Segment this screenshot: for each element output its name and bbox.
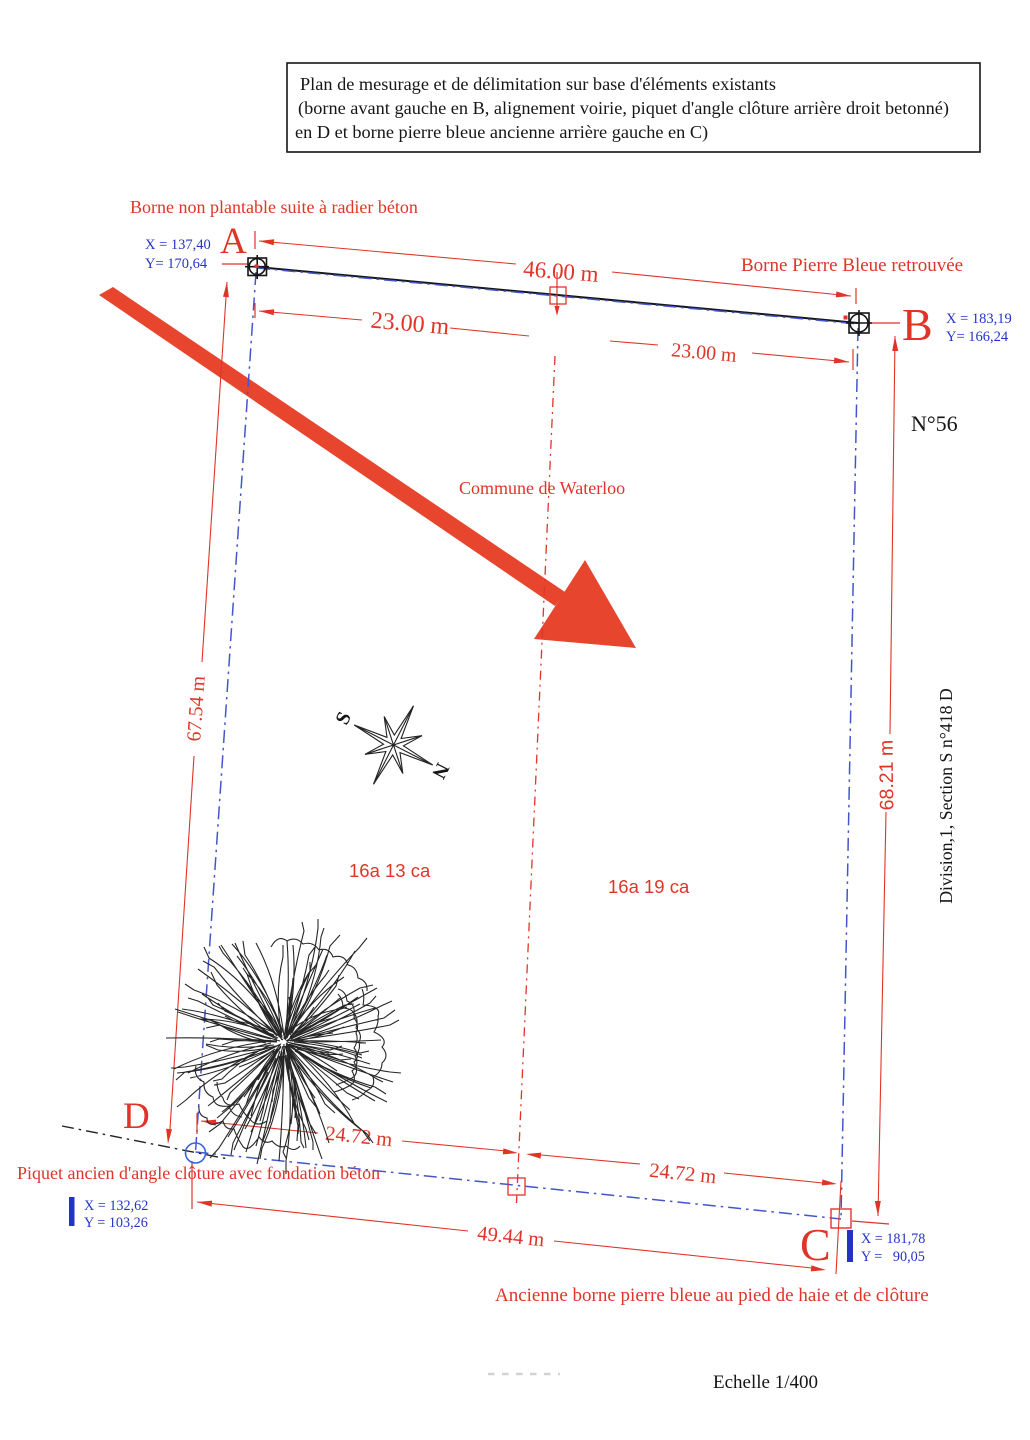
svg-text:67.54 m: 67.54 m bbox=[183, 675, 210, 742]
svg-text:68.21 m: 68.21 m bbox=[875, 740, 898, 811]
svg-text:Division,1, Section S n°418 D: Division,1, Section S n°418 D bbox=[936, 688, 956, 904]
svg-text:(borne avant gauche en B, alig: (borne avant gauche en B, alignement voi… bbox=[298, 98, 949, 119]
svg-text:Echelle 1/400: Echelle 1/400 bbox=[713, 1372, 818, 1393]
svg-text:B: B bbox=[902, 299, 933, 350]
svg-text:Borne non plantable suite à ra: Borne non plantable suite à radier béton bbox=[130, 197, 418, 217]
svg-text:C: C bbox=[800, 1219, 831, 1270]
svg-text:Y= 170,64: Y= 170,64 bbox=[145, 256, 208, 272]
svg-text:A: A bbox=[220, 221, 247, 262]
svg-text:Commune de Waterloo: Commune de Waterloo bbox=[459, 478, 625, 498]
svg-text:X = 181,78: X = 181,78 bbox=[861, 1231, 925, 1247]
svg-text:16a 13 ca: 16a 13 ca bbox=[349, 860, 431, 881]
svg-text:X = 137,40: X = 137,40 bbox=[145, 237, 211, 253]
svg-text:Y = 103,26: Y = 103,26 bbox=[84, 1215, 148, 1231]
svg-text:X = 132,62: X = 132,62 bbox=[84, 1198, 148, 1214]
svg-text:N°56: N°56 bbox=[911, 411, 958, 436]
svg-text:16a 19 ca: 16a 19 ca bbox=[608, 876, 690, 897]
svg-text:Y= 166,24: Y= 166,24 bbox=[946, 329, 1009, 345]
svg-text:X = 183,19: X = 183,19 bbox=[946, 311, 1012, 327]
svg-text:D: D bbox=[123, 1096, 150, 1137]
svg-text:Piquet ancien d'angle clôture: Piquet ancien d'angle clôture avec fonda… bbox=[17, 1163, 380, 1183]
svg-text:Borne Pierre Bleue retrouvée: Borne Pierre Bleue retrouvée bbox=[741, 255, 963, 276]
svg-text:Ancienne borne pierre bleue au: Ancienne borne pierre bleue au pied de h… bbox=[495, 1285, 929, 1306]
svg-text:Y = 90,05: Y = 90,05 bbox=[861, 1249, 925, 1265]
svg-text:Plan de mesurage et de délimit: Plan de mesurage et de délimitation sur … bbox=[300, 74, 776, 94]
svg-text:en D et borne pierre bleue anc: en D et borne pierre bleue ancienne arri… bbox=[295, 122, 708, 143]
